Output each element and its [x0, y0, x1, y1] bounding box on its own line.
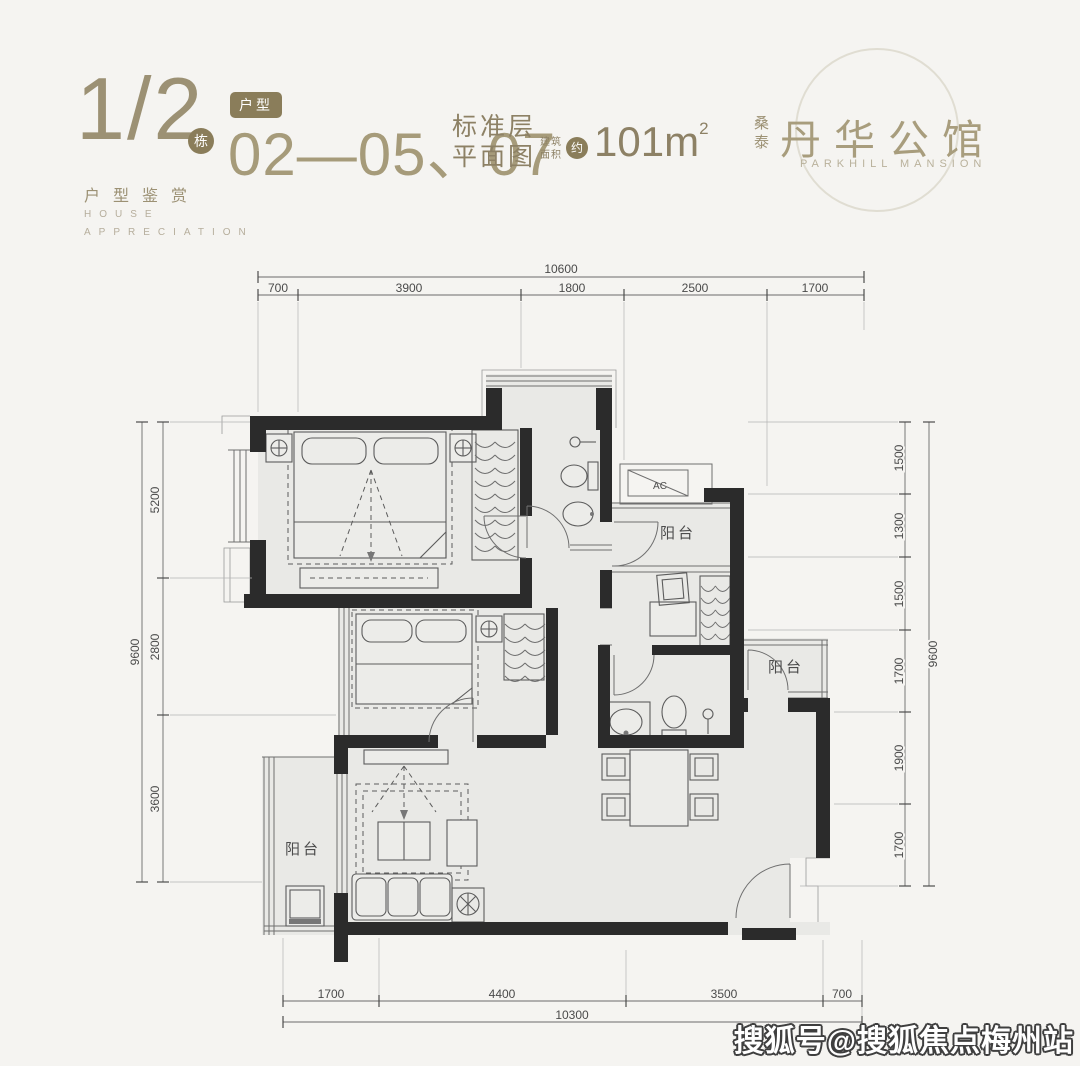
dim-right-3: 1700 [892, 657, 906, 684]
dim-left-0: 5200 [148, 486, 162, 513]
coffee-table [378, 822, 430, 860]
dim-right-2: 1500 [892, 580, 906, 607]
dim-bottom-total: 10300 [555, 1008, 589, 1022]
dim-left-1: 2800 [148, 633, 162, 660]
nightstand-second [476, 616, 502, 642]
floor-plan-drawing: 10600 700 3900 1800 2500 1700 1700 4400 … [0, 0, 1080, 1066]
side-cabinet [447, 820, 477, 866]
dim-bottom-3: 700 [832, 987, 852, 1001]
dim-left-2: 3600 [148, 785, 162, 812]
dim-left-total: 9600 [128, 638, 142, 665]
watermark: 搜狐号@搜狐焦点梅州站 [734, 1016, 1074, 1060]
dim-top-1: 3900 [396, 281, 423, 295]
dim-bottom-0: 1700 [318, 987, 345, 1001]
floor-plan-page: 1/2 栋 户型鉴赏 HOUSE APPRECIATION 户型 02—05、0… [0, 0, 1080, 1066]
dim-top-total: 10600 [544, 262, 578, 276]
entry-notch [790, 858, 830, 922]
dim-top-4: 1700 [802, 281, 829, 295]
dim-bottom-1: 4400 [489, 987, 516, 1001]
sofa [352, 874, 452, 920]
bed-second [352, 610, 478, 708]
label-balcony-top: 阳台 [660, 525, 696, 542]
label-ac: AC [653, 481, 667, 492]
dim-top-2: 1800 [559, 281, 586, 295]
washing-machine [286, 886, 324, 926]
dim-right-total: 9600 [926, 640, 940, 667]
dim-bottom-2: 3500 [711, 987, 738, 1001]
nightstand-master-left [266, 434, 292, 462]
dim-top-3: 2500 [682, 281, 709, 295]
balcony2-doorway-gap [748, 698, 788, 712]
dim-top-0: 700 [268, 281, 288, 295]
label-balcony-right: 阳台 [768, 659, 804, 676]
dim-right-5: 1700 [892, 831, 906, 858]
dim-right-1: 1300 [892, 512, 906, 539]
dim-right-0: 1500 [892, 444, 906, 471]
label-balcony-bottom: 阳台 [285, 841, 321, 858]
dim-right-4: 1900 [892, 744, 906, 771]
